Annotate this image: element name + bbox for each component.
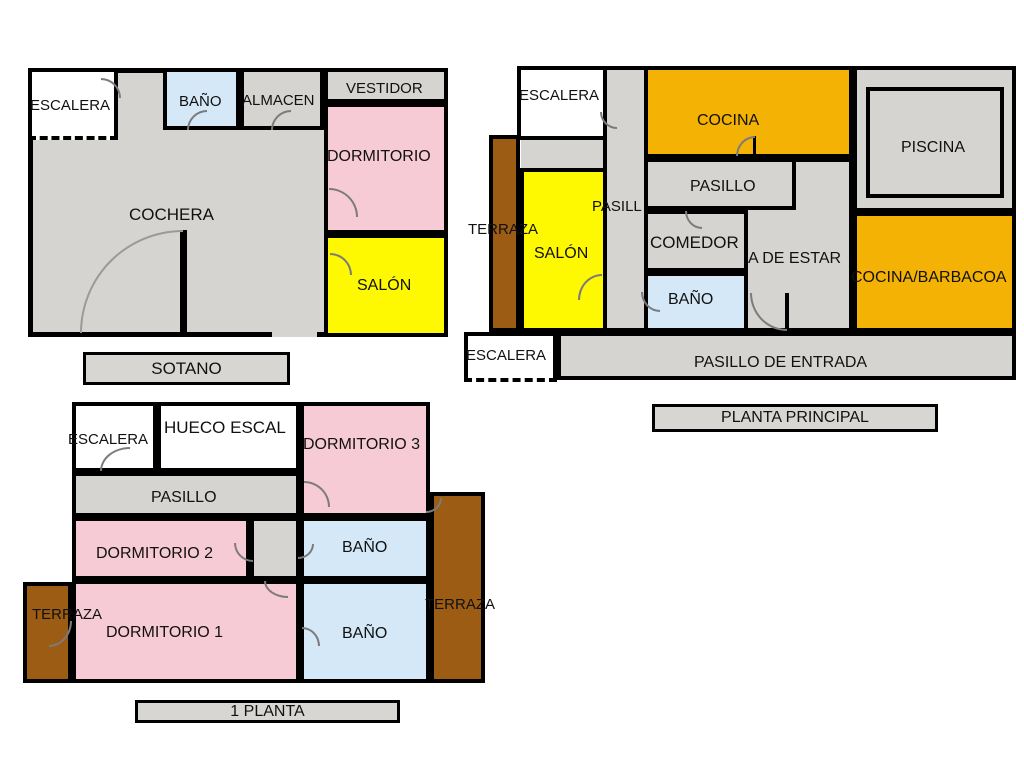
planta1-hueco-escal-label: HUECO ESCAL <box>164 419 286 438</box>
sotano-vestidor-label: VESTIDOR <box>346 81 423 98</box>
sotano-cochera-label: COCHERA <box>129 206 214 225</box>
principal-sala-de-estar-label: A DE ESTAR <box>748 250 841 268</box>
plan-title-1-planta-label: 1 PLANTA <box>230 703 304 721</box>
principal-pasillo-entrada-label: PASILLO DE ENTRADA <box>694 354 867 372</box>
planta1-escalera-label: ESCALERA <box>68 432 148 449</box>
floorplan-canvas: CASA SOTANO PLANTA PRINCIPAL 1 PLANTA ES… <box>0 0 1024 768</box>
plan-title-planta-principal-label: PLANTA PRINCIPAL <box>721 409 869 427</box>
principal-cocina-barbacoa-label: COCINA/BARBACOA <box>851 269 1007 287</box>
planta1-bano-sup-label: BAÑO <box>342 539 387 557</box>
principal-piscina-label: PISCINA <box>901 139 965 157</box>
principal-comedor-label: COMEDOR <box>650 234 739 253</box>
principal-pasillo-label: PASILLO <box>690 178 756 196</box>
sotano-almacen-label: ALMACEN <box>242 93 315 110</box>
principal-bano-label: BAÑO <box>668 291 713 309</box>
planta1-pasillo-label: PASILLO <box>151 489 217 507</box>
sotano-escalera-label: ESCALERA <box>30 98 110 115</box>
planta1-dormitorio2-label: DORMITORIO 2 <box>96 545 213 563</box>
principal-escalera-top-label: ESCALERA <box>519 88 599 105</box>
planta1-terraza-izq-label: TERRAZA <box>32 607 102 624</box>
plan-title-1-planta: 1 PLANTA <box>135 700 400 723</box>
sotano-bano-label: BAÑO <box>179 94 222 111</box>
sotano-garage-opening <box>272 331 317 337</box>
principal-terraza-label: TERRAZA <box>468 222 538 239</box>
planta1-bano-inf-label: BAÑO <box>342 625 387 643</box>
planta1-terraza-der-label: TERRAZA <box>425 597 495 614</box>
sotano-dormitorio-label: DORMITORIO <box>327 148 431 166</box>
plan-title-planta-principal: PLANTA PRINCIPAL <box>652 404 938 432</box>
principal-landing-room <box>521 140 606 168</box>
principal-salon-label: SALÓN <box>534 245 588 263</box>
planta1-dormitorio1-label: DORMITORIO 1 <box>106 624 223 642</box>
principal-pasillo-v-label: PASILL <box>592 199 642 216</box>
principal-cocina-label: COCINA <box>697 112 759 130</box>
planta1-vestibulo-room <box>250 517 300 580</box>
principal-escalera-bottom-label: ESCALERA <box>466 348 546 365</box>
sotano-salon-label: SALÓN <box>357 277 411 295</box>
plan-title-sotano: SOTANO <box>83 352 290 385</box>
planta1-dormitorio3-label: DORMITORIO 3 <box>303 436 420 454</box>
planta1-terraza-der-room <box>430 492 485 683</box>
plan-title-sotano-label: SOTANO <box>151 359 222 379</box>
